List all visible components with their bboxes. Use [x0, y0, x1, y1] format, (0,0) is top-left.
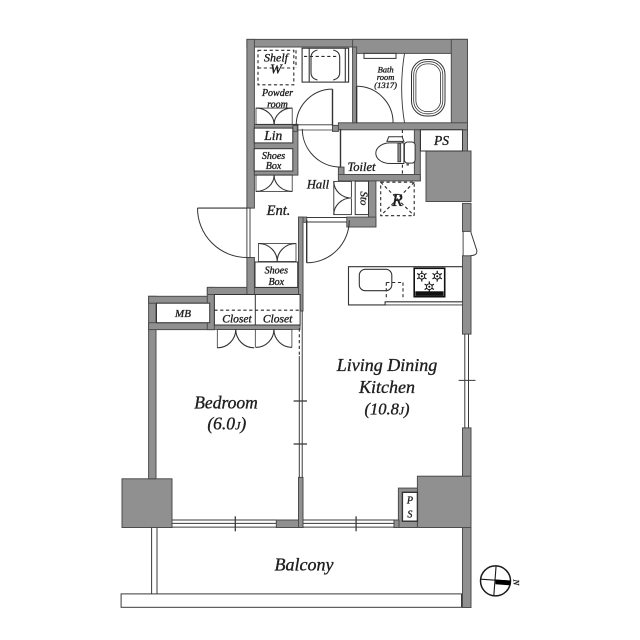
- svg-text:Powder: Powder: [261, 88, 293, 99]
- svg-text:Ent.: Ent.: [266, 203, 291, 219]
- svg-text:W: W: [270, 63, 283, 78]
- svg-text:(1317): (1317): [374, 80, 397, 90]
- svg-text:Bedroom: Bedroom: [194, 392, 258, 412]
- svg-text:Balcony: Balcony: [275, 555, 334, 575]
- svg-text:R: R: [391, 190, 403, 210]
- svg-text:Toilet: Toilet: [347, 160, 376, 174]
- svg-text:(6.0J): (6.0J): [207, 414, 246, 434]
- svg-text:Sto: Sto: [357, 191, 369, 206]
- svg-text:Kitchen: Kitchen: [358, 377, 415, 397]
- svg-text:Closet: Closet: [222, 313, 252, 325]
- svg-text:S: S: [407, 510, 412, 521]
- svg-text:Living Dining: Living Dining: [336, 355, 438, 375]
- svg-text:Box: Box: [266, 161, 282, 172]
- svg-text:Lin: Lin: [263, 128, 282, 143]
- svg-text:Box: Box: [269, 277, 285, 288]
- svg-text:Closet: Closet: [263, 313, 293, 325]
- svg-text:Hall: Hall: [306, 178, 330, 192]
- svg-text:PS: PS: [433, 133, 449, 148]
- svg-text:room: room: [267, 99, 288, 110]
- svg-text:Shoes: Shoes: [265, 266, 288, 277]
- svg-text:P: P: [406, 495, 413, 506]
- svg-text:MB: MB: [174, 308, 191, 320]
- svg-text:Shoes: Shoes: [262, 151, 285, 162]
